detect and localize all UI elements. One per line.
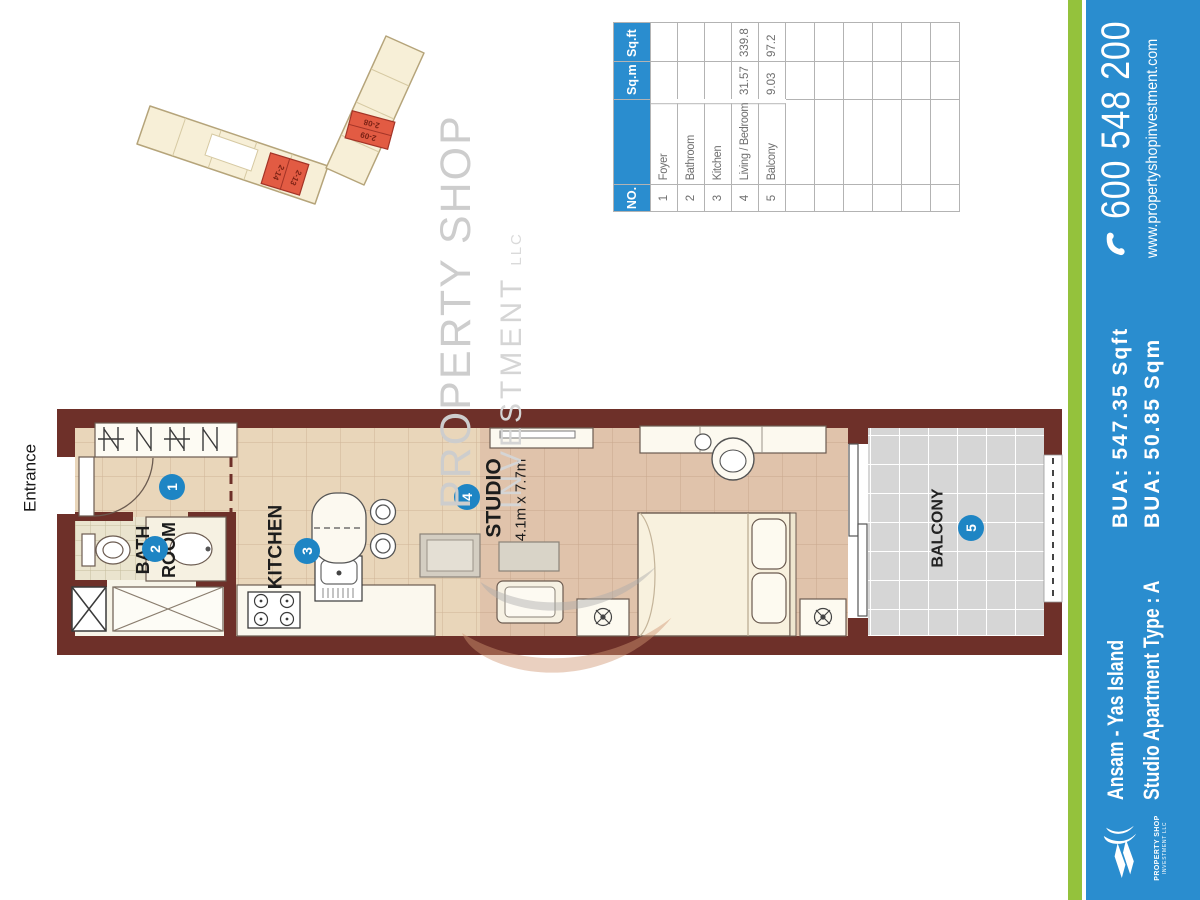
bua-sqm: BUA: 50.85 Sqm: [1141, 327, 1165, 528]
table-cell-empty: [815, 184, 844, 211]
table-cell-empty: [786, 22, 815, 61]
phone-number: 600 548 200: [1094, 21, 1139, 219]
table-header-sqft: Sq.ft: [614, 22, 651, 61]
listing-title-block: Ansam - Yas Island Studio Apartment Type…: [1103, 526, 1165, 800]
website-url: www.propertyshopinvestment.com: [1144, 13, 1162, 258]
table-cell-sqm: [705, 61, 732, 99]
green-accent-stripe: [1068, 0, 1082, 900]
table-cell-empty: [931, 184, 960, 211]
area-table: NO. Sq.m Sq.ft 1 Foyer 2 Bathroom 3 Kitc…: [613, 22, 960, 212]
table-cell-empty: [844, 184, 873, 211]
rotated-layout: PROPERTY SHOP INVESTMENTLLC NO. Sq.m Sq.…: [0, 0, 1200, 900]
table-cell-sqft: [678, 22, 705, 61]
table-cell-empty: [873, 99, 902, 184]
table-cell-sqft: 339.8: [732, 22, 759, 61]
table-cell-empty: [931, 99, 960, 184]
watermark-swoosh-icon: [462, 520, 697, 695]
table-cell-empty: [786, 61, 815, 99]
table-cell-empty: [844, 99, 873, 184]
phone-icon: [1102, 228, 1132, 258]
table-cell-empty: [815, 22, 844, 61]
table-cell-no: 2: [678, 184, 705, 211]
table-cell-sqm: 31.57: [732, 61, 759, 99]
table-cell-empty: [786, 184, 815, 211]
table-cell-empty: [873, 22, 902, 61]
bua-sqft: BUA: 547.35 Sqft: [1109, 327, 1133, 528]
watermark: PROPERTY SHOP INVESTMENTLLC: [428, 205, 718, 705]
table-cell-no: 4: [732, 184, 759, 211]
table-cell-no: 5: [759, 184, 786, 211]
table-cell-sqm: [678, 61, 705, 99]
table-header-name: [614, 99, 651, 184]
table-cell-empty: [902, 22, 931, 61]
table-cell-empty: [873, 61, 902, 99]
unit-type: Studio Apartment Type : A: [1139, 581, 1165, 800]
table-cell-empty: [873, 184, 902, 211]
table-cell-sqft: [651, 22, 678, 61]
property-shop-logo-icon: [1092, 818, 1148, 878]
table-cell-empty: [815, 61, 844, 99]
watermark-line1: PROPERTY SHOP: [432, 114, 481, 509]
table-cell-empty: [844, 61, 873, 99]
table-cell-name: Kitchen: [705, 103, 732, 184]
table-cell-sqm: 9.03: [759, 61, 786, 99]
table-cell-no: 1: [651, 184, 678, 211]
table-cell-sqft: [705, 22, 732, 61]
table-cell-empty: [902, 99, 931, 184]
project-name: Ansam - Yas Island: [1103, 581, 1129, 800]
footer-bar: PROPERTY SHOP INVESTMENT LLC Ansam - Yas…: [1086, 0, 1200, 900]
company-logo: PROPERTY SHOP INVESTMENT LLC: [1092, 806, 1168, 890]
table-cell-empty: [786, 99, 815, 184]
logo-text-line2: INVESTMENT LLC: [1162, 806, 1168, 890]
built-up-area-block: BUA: 547.35 Sqft BUA: 50.85 Sqm: [1109, 327, 1165, 528]
table-cell-empty: [815, 99, 844, 184]
watermark-line2: INVESTMENT: [495, 276, 528, 509]
table-cell-name: Foyer: [651, 103, 678, 184]
table-cell-empty: [931, 22, 960, 61]
table-cell-empty: [902, 184, 931, 211]
table-cell-name: Bathroom: [678, 103, 705, 184]
table-header-no: NO.: [614, 184, 651, 211]
brochure-page: 2-08 2-09 2-14 2-13: [0, 0, 1200, 900]
contact-block: 600 548 200 www.propertyshopinvestment.c…: [1094, 0, 1162, 258]
table-cell-sqm: [651, 61, 678, 99]
table-cell-empty: [902, 61, 931, 99]
table-cell-empty: [844, 22, 873, 61]
logo-text-line1: PROPERTY SHOP: [1154, 806, 1161, 890]
table-cell-empty: [931, 61, 960, 99]
table-cell-name: Balcony: [759, 103, 786, 184]
table-cell-no: 3: [705, 184, 732, 211]
watermark-llc: LLC: [508, 232, 525, 266]
table-header-sqm: Sq.m: [614, 61, 651, 99]
table-cell-sqft: 97.2: [759, 22, 786, 61]
table-cell-name: Living / Bedroom: [732, 103, 759, 184]
